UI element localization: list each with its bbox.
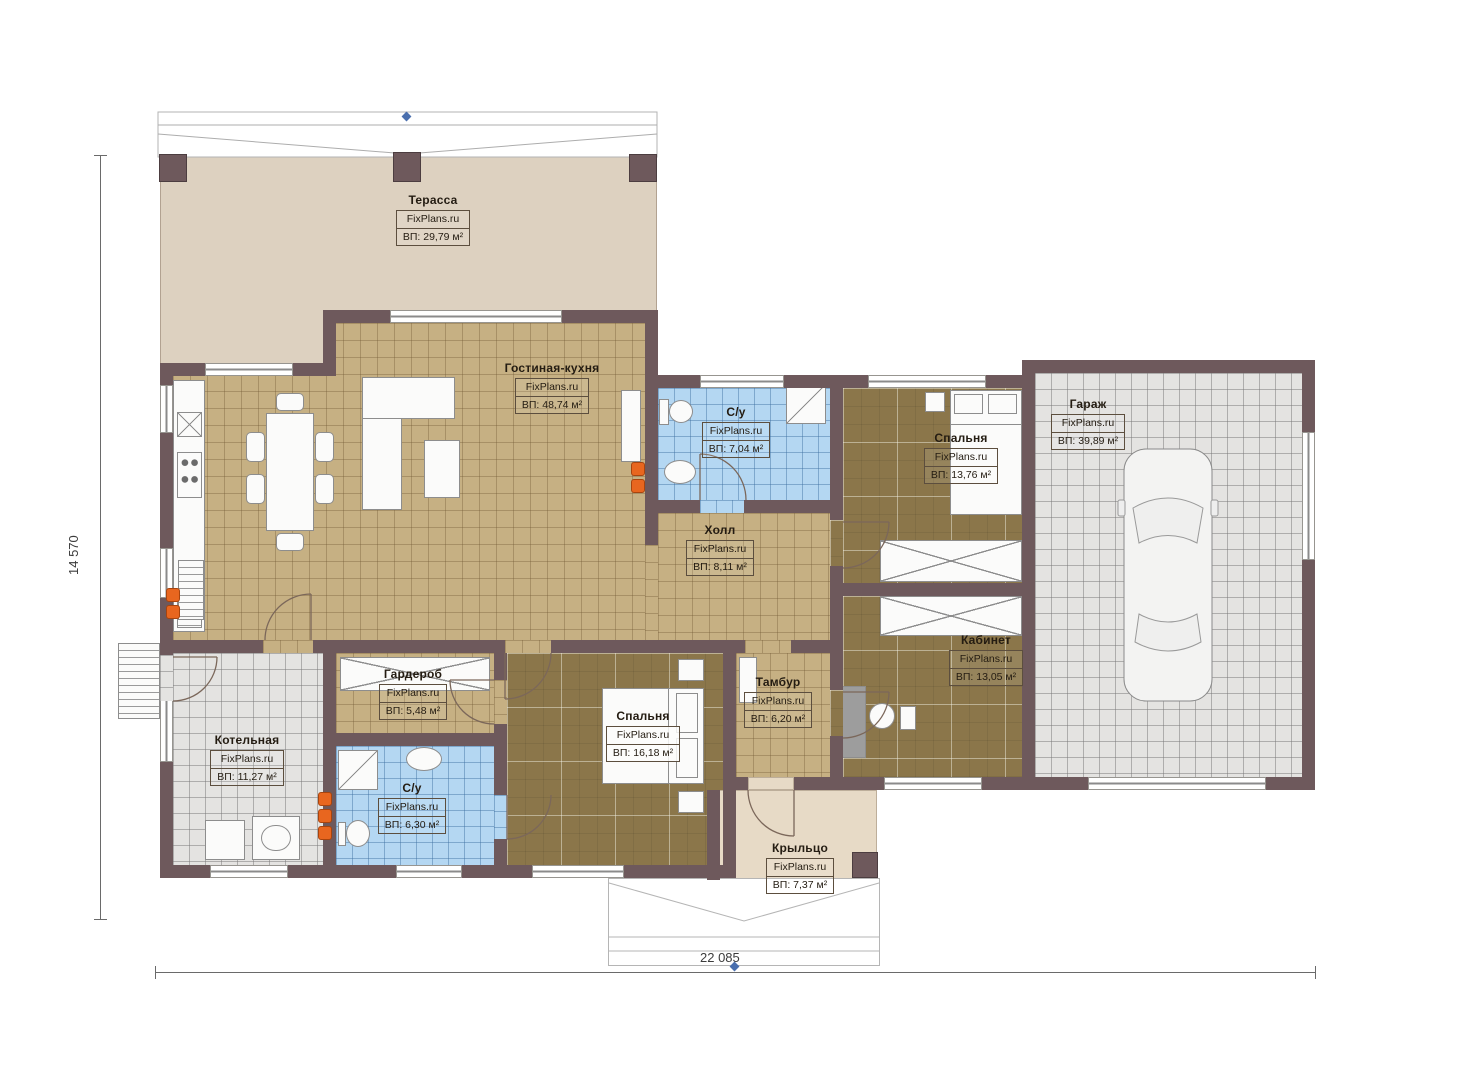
- radiator-symbol: [631, 462, 645, 493]
- room-name: С/у: [347, 782, 477, 796]
- door-arc: [700, 454, 746, 500]
- room-label-bedroom2: Спальня FixPlans.ru ВП: 16,18 м²: [578, 710, 708, 762]
- room-area: ВП: 13,76 м²: [925, 466, 997, 484]
- pillow: [988, 394, 1017, 414]
- door-opening: [263, 640, 313, 653]
- tv-stand: [621, 390, 641, 462]
- blanket-line: [950, 424, 1022, 425]
- room-info-box: FixPlans.ru ВП: 48,74 м²: [515, 378, 589, 415]
- window: [396, 865, 462, 878]
- sink-symbol: [406, 747, 442, 771]
- door-opening: [160, 655, 173, 701]
- brand-text: FixPlans.ru: [211, 751, 283, 768]
- glass-door: [390, 310, 562, 323]
- dimension-line-horizontal: [155, 972, 1315, 973]
- terrace-pillar: [159, 154, 187, 182]
- room-label-hall: Холл FixPlans.ru ВП: 8,11 м²: [655, 524, 785, 576]
- window: [160, 385, 173, 433]
- room-area: ВП: 13,05 м²: [950, 668, 1022, 686]
- wall: [843, 583, 1022, 596]
- brand-text: FixPlans.ru: [925, 449, 997, 466]
- brand-text: FixPlans.ru: [950, 651, 1022, 668]
- room-label-tambour: Тамбур FixPlans.ru ВП: 6,20 м²: [713, 676, 843, 728]
- room-info-box: FixPlans.ru ВП: 11,27 м²: [210, 750, 284, 787]
- window: [210, 865, 288, 878]
- radiator-dot: [318, 826, 332, 840]
- toilet-symbol: [659, 399, 669, 425]
- room-name: Гостиная-кухня: [487, 362, 617, 376]
- brand-text: FixPlans.ru: [1052, 415, 1124, 432]
- chair: [276, 533, 304, 551]
- door-arc: [265, 594, 311, 640]
- room-label-garage: Гараж FixPlans.ru ВП: 39,89 м²: [1023, 398, 1153, 450]
- room-area: ВП: 16,18 м²: [607, 744, 679, 762]
- pillow: [954, 394, 983, 414]
- brand-text: FixPlans.ru: [379, 799, 445, 816]
- nightstand: [678, 659, 704, 681]
- radiator-dot: [318, 792, 332, 806]
- nightstand: [678, 791, 704, 813]
- door-arc: [505, 653, 551, 699]
- brand-text: FixPlans.ru: [687, 541, 753, 558]
- radiator-dot: [166, 605, 180, 619]
- door-arc: [843, 522, 889, 568]
- window: [868, 375, 986, 388]
- room-info-box: FixPlans.ru ВП: 39,89 м²: [1051, 414, 1125, 451]
- garage-door: [1088, 777, 1266, 790]
- sofa-symbol: [362, 418, 402, 510]
- room-label-bath2: С/у FixPlans.ru ВП: 6,30 м²: [347, 782, 477, 834]
- room-name: Холл: [655, 524, 785, 538]
- room-area: ВП: 7,04 м²: [703, 440, 769, 458]
- room-name: Терасса: [368, 194, 498, 208]
- brand-text: FixPlans.ru: [745, 693, 811, 710]
- terrace-pillar: [393, 152, 421, 182]
- brand-text: FixPlans.ru: [397, 211, 469, 228]
- brand-text: FixPlans.ru: [607, 727, 679, 744]
- radiator-dot: [166, 588, 180, 602]
- room-label-boiler: Котельная FixPlans.ru ВП: 11,27 м²: [182, 734, 312, 786]
- wall: [1302, 360, 1315, 790]
- room-label-office: Кабинет FixPlans.ru ВП: 13,05 м²: [921, 634, 1051, 686]
- car-symbol: [1118, 446, 1218, 704]
- dining-table: [266, 413, 314, 531]
- room-area: ВП: 7,37 м²: [767, 876, 833, 894]
- room-info-box: FixPlans.ru ВП: 6,20 м²: [744, 692, 812, 729]
- window: [700, 375, 784, 388]
- brand-text: FixPlans.ru: [767, 859, 833, 876]
- chair: [276, 393, 304, 411]
- boiler-equipment: [178, 560, 204, 620]
- room-label-bath1: С/у FixPlans.ru ВП: 7,04 м²: [671, 406, 801, 458]
- window: [884, 777, 982, 790]
- room-name: Котельная: [182, 734, 312, 748]
- kitchen-sink-symbol: [177, 412, 202, 437]
- door-opening: [748, 777, 794, 790]
- toilet-symbol: [338, 822, 346, 846]
- chair: [315, 432, 334, 462]
- room-area: ВП: 39,89 м²: [1052, 432, 1124, 450]
- dimension-tick: [94, 919, 107, 920]
- room-info-box: FixPlans.ru ВП: 13,76 м²: [924, 448, 998, 485]
- room-area: ВП: 8,11 м²: [687, 558, 753, 576]
- door-arc: [748, 790, 794, 836]
- exterior-steps: [118, 643, 160, 719]
- window: [1302, 432, 1315, 560]
- brand-text: FixPlans.ru: [380, 685, 446, 702]
- window: [205, 363, 293, 376]
- coffee-table: [424, 440, 460, 498]
- room-name: Тамбур: [713, 676, 843, 690]
- door-opening: [700, 500, 744, 513]
- room-area: ВП: 29,79 м²: [397, 228, 469, 246]
- room-info-box: FixPlans.ru ВП: 8,11 м²: [686, 540, 754, 577]
- room-area: ВП: 5,48 м²: [380, 702, 446, 720]
- room-area: ВП: 6,30 м²: [379, 816, 445, 834]
- wardrobe-symbol: [880, 596, 1022, 636]
- room-area: ВП: 48,74 м²: [516, 396, 588, 414]
- dimension-tick: [1315, 966, 1316, 979]
- room-area: ВП: 11,27 м²: [211, 768, 283, 786]
- wall: [160, 640, 836, 653]
- boiler-unit: [205, 820, 245, 860]
- stove-symbol: [177, 452, 202, 498]
- wall: [160, 363, 173, 878]
- nightstand: [925, 392, 945, 412]
- door-opening: [505, 640, 551, 653]
- window: [160, 700, 173, 762]
- window: [532, 865, 624, 878]
- room-info-box: FixPlans.ru ВП: 13,05 м²: [949, 650, 1023, 687]
- door-opening: [745, 640, 791, 653]
- room-label-bedroom1: Спальня FixPlans.ru ВП: 13,76 м²: [896, 432, 1026, 484]
- brand-text: FixPlans.ru: [703, 423, 769, 440]
- wardrobe-symbol: [880, 540, 1022, 582]
- terrace-floor: [161, 310, 323, 363]
- sink-symbol: [664, 460, 696, 484]
- room-info-box: FixPlans.ru ВП: 7,37 м²: [766, 858, 834, 895]
- room-name: Крыльцо: [735, 842, 865, 856]
- sofa-symbol: [362, 377, 455, 419]
- room-label-terrace: Терасса FixPlans.ru ВП: 29,79 м²: [368, 194, 498, 246]
- room-info-box: FixPlans.ru ВП: 6,30 м²: [378, 798, 446, 835]
- radiator-dot: [631, 479, 645, 493]
- wall: [336, 733, 494, 746]
- room-info-box: FixPlans.ru ВП: 16,18 м²: [606, 726, 680, 763]
- room-name: Гараж: [1023, 398, 1153, 412]
- dimension-line-vertical: [100, 155, 101, 920]
- brand-text: FixPlans.ru: [516, 379, 588, 396]
- radiator-dot: [318, 809, 332, 823]
- wall: [323, 653, 336, 878]
- room-name: Спальня: [896, 432, 1026, 446]
- room-info-box: FixPlans.ru ВП: 5,48 м²: [379, 684, 447, 721]
- wall: [658, 500, 830, 513]
- door-arc: [843, 692, 889, 738]
- chair: [315, 474, 334, 504]
- wall: [707, 790, 720, 880]
- door-opening: [830, 520, 843, 566]
- room-info-box: FixPlans.ru ВП: 7,04 м²: [702, 422, 770, 459]
- floor-plan-page: { "plan": { "brand": "FixPlans.ru", "roo…: [0, 0, 1474, 1080]
- room-label-wardrobe: Гардероб FixPlans.ru ВП: 5,48 м²: [348, 668, 478, 720]
- door-arc: [507, 795, 551, 839]
- side-table: [900, 706, 916, 730]
- door-opening: [494, 795, 507, 839]
- room-name: С/у: [671, 406, 801, 420]
- washing-machine-door: [261, 825, 290, 852]
- room-name: Спальня: [578, 710, 708, 724]
- radiator-symbol: [318, 792, 332, 840]
- radiator-dot: [631, 462, 645, 476]
- chair: [246, 474, 265, 504]
- room-name: Гардероб: [348, 668, 478, 682]
- chair: [246, 432, 265, 462]
- room-label-porch: Крыльцо FixPlans.ru ВП: 7,37 м²: [735, 842, 865, 894]
- room-info-box: FixPlans.ru ВП: 29,79 м²: [396, 210, 470, 247]
- dimension-tick: [94, 155, 107, 156]
- room-name: Кабинет: [921, 634, 1051, 648]
- door-arc: [173, 657, 217, 701]
- washing-machine: [252, 816, 300, 860]
- dimension-tick: [155, 966, 156, 979]
- room-area: ВП: 6,20 м²: [745, 710, 811, 728]
- wall: [1022, 360, 1315, 373]
- terrace-pillar: [629, 154, 657, 182]
- radiator-symbol: [166, 588, 180, 619]
- room-label-living: Гостиная-кухня FixPlans.ru ВП: 48,74 м²: [487, 362, 617, 414]
- dimension-height-label: 14 570: [66, 505, 88, 575]
